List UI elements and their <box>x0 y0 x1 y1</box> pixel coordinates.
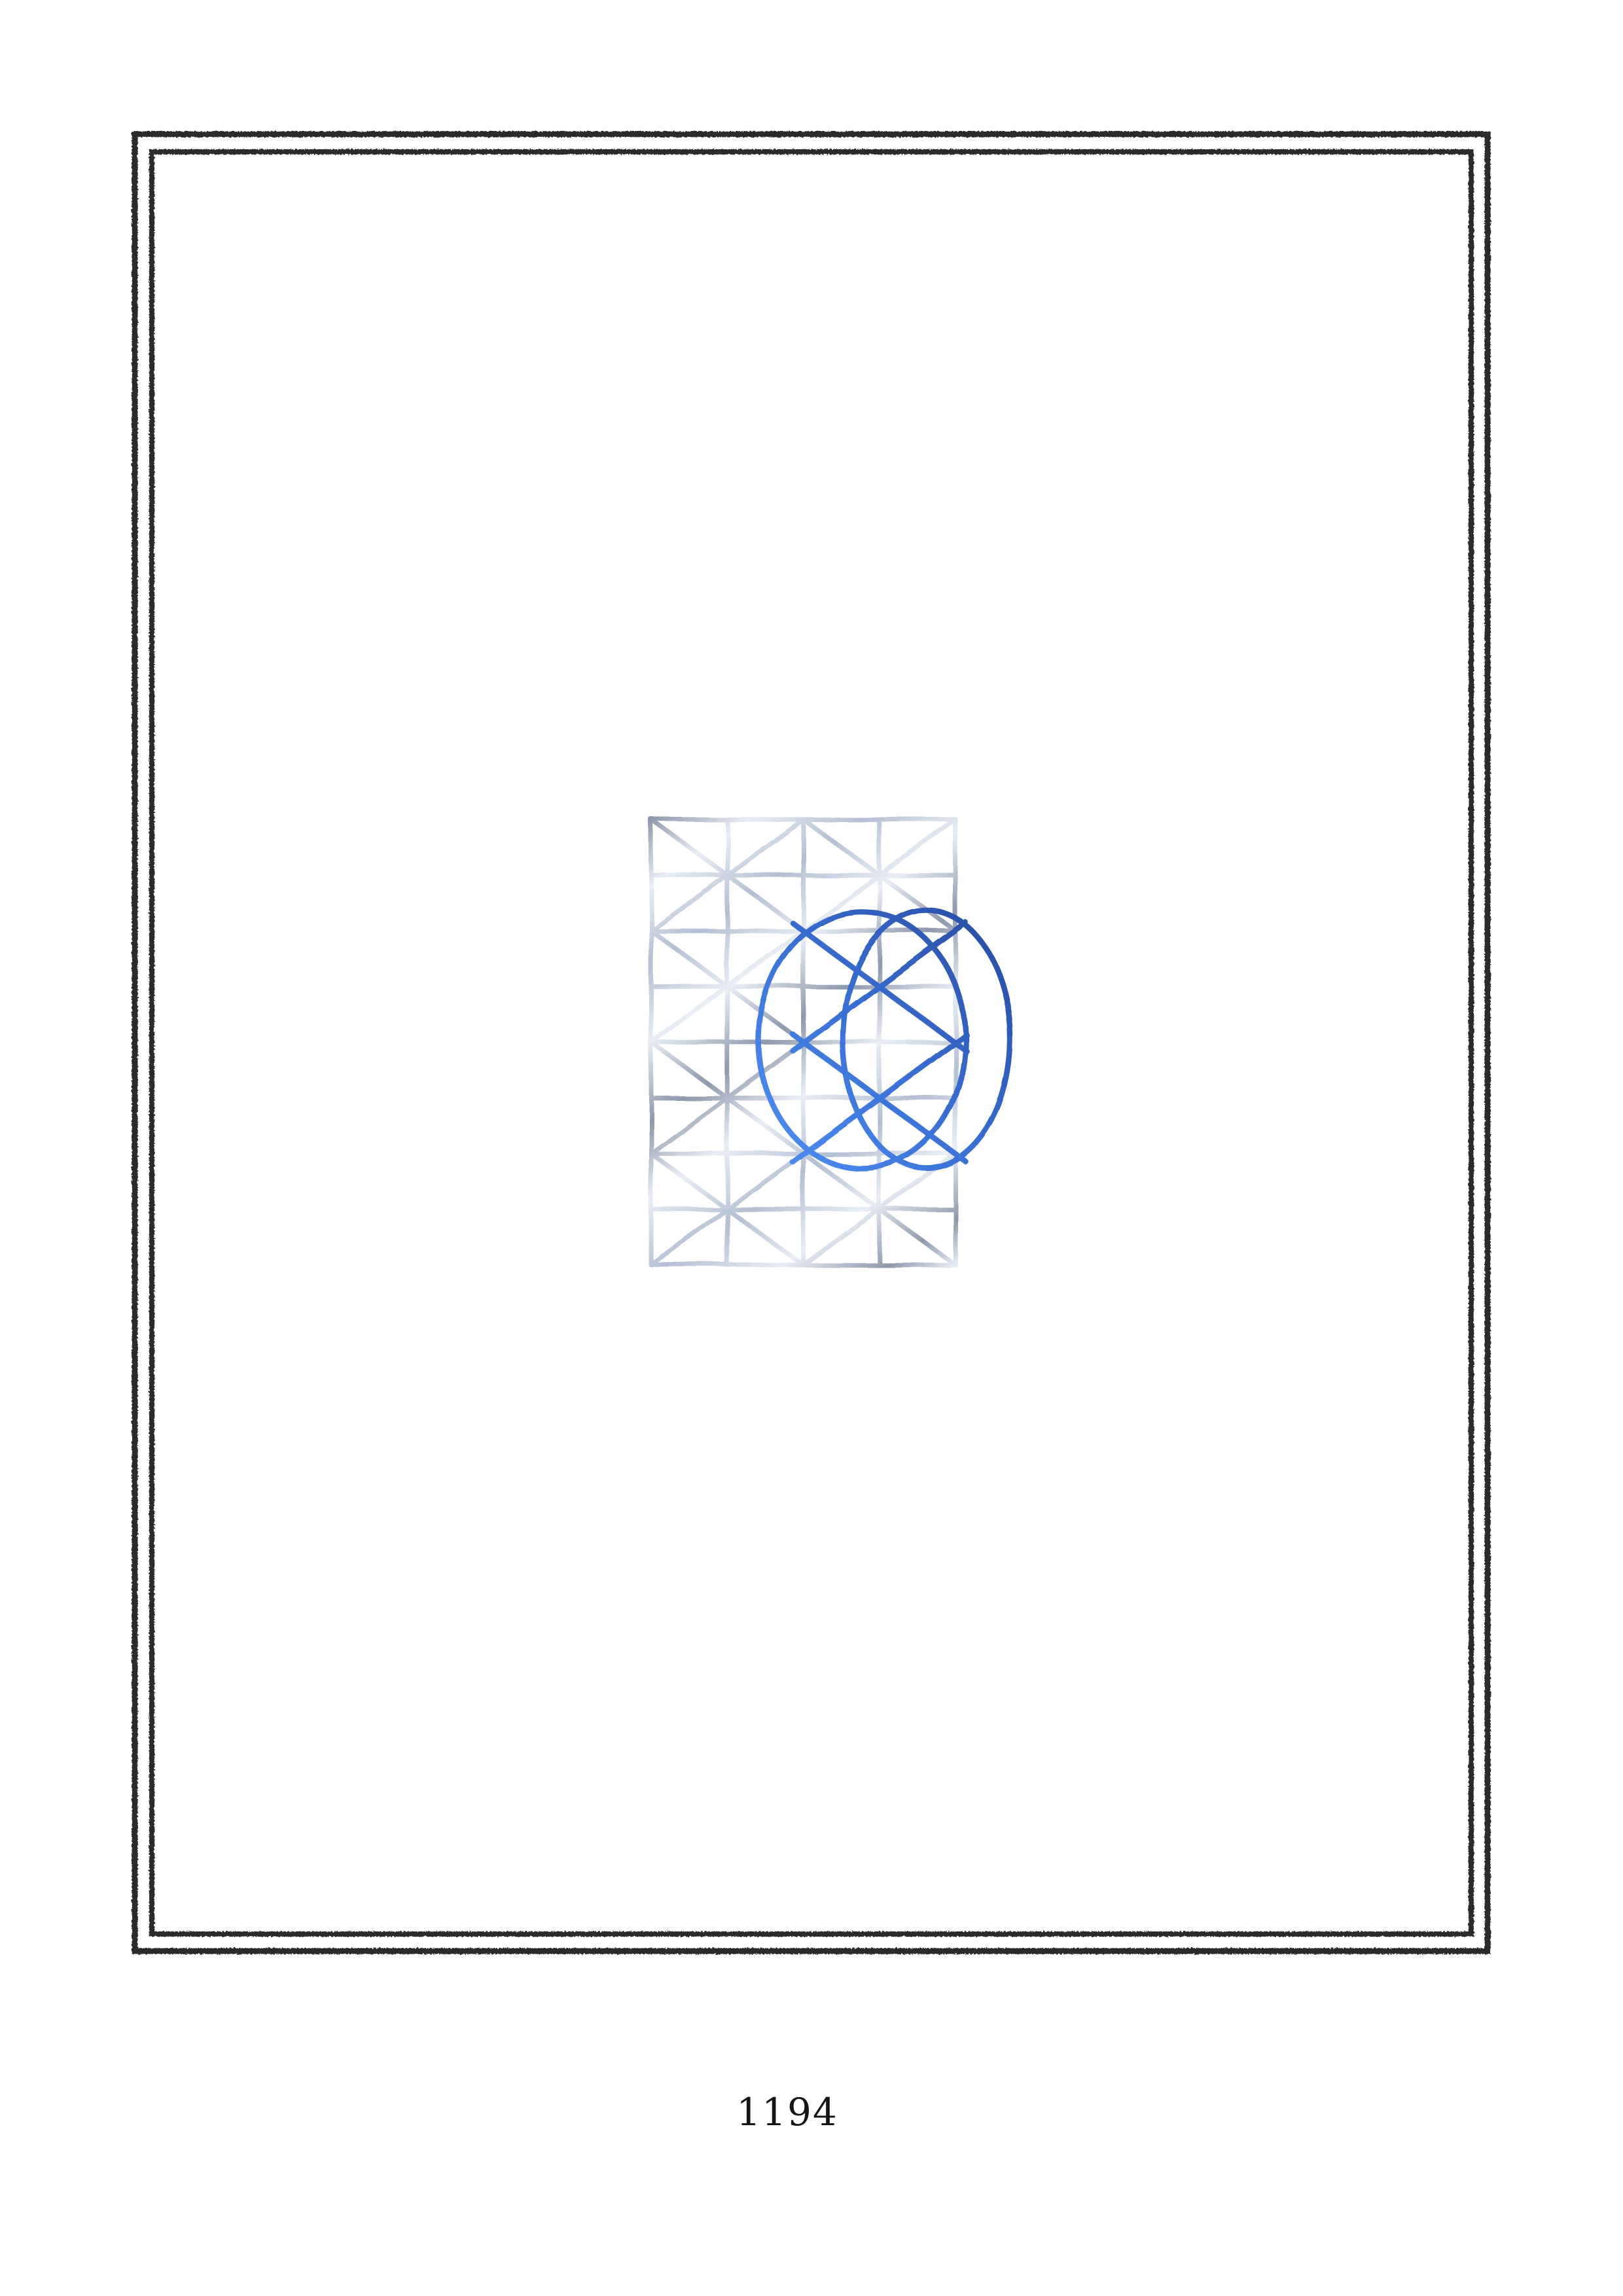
book-page: 1194 <box>0 0 1623 2296</box>
globe-overlay <box>758 910 1010 1168</box>
page-frame-and-lattice-figure <box>0 0 1623 2296</box>
page-number: 1194 <box>736 2090 838 2134</box>
page-svg <box>0 0 1623 2296</box>
